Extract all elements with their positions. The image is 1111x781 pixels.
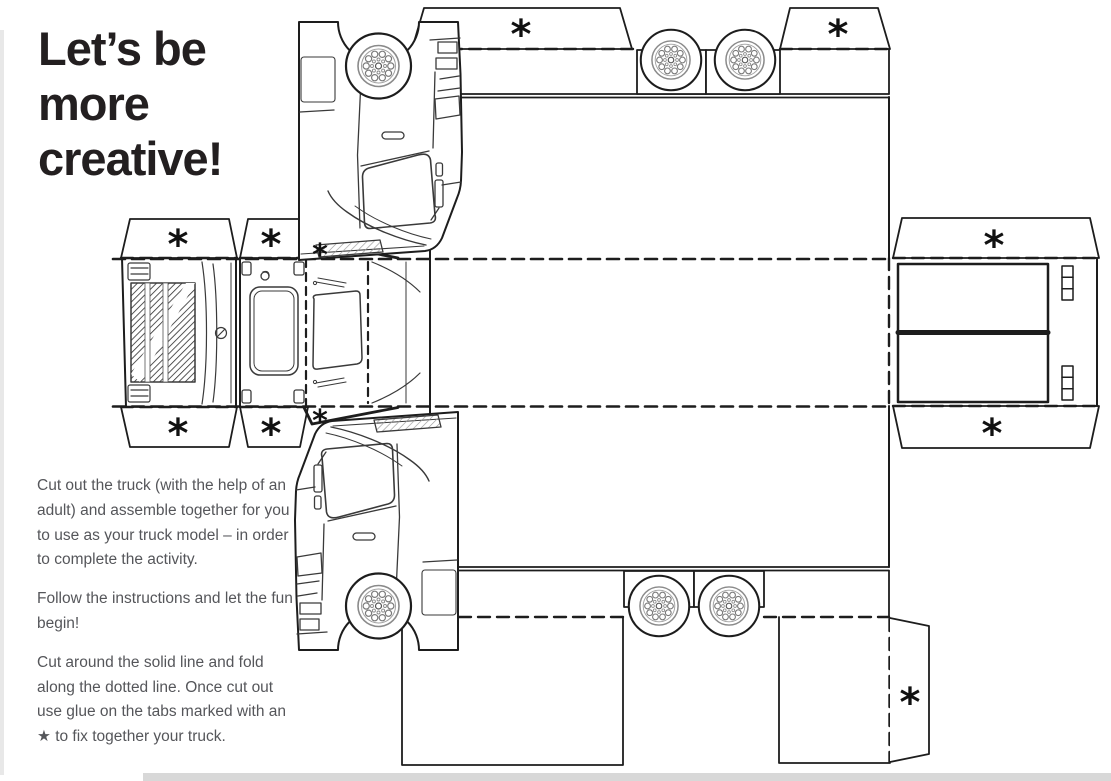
glue-tab-marker: * (828, 12, 849, 58)
grille-artwork (128, 262, 231, 404)
glue-tab-marker: * (168, 411, 189, 457)
glue-tab-marker: * (168, 222, 189, 268)
door-hinges (1062, 266, 1073, 400)
cut-line-double-bottom (430, 567, 889, 571)
glue-tab-marker: * (511, 12, 532, 58)
glue-tab-marker: * (261, 411, 282, 457)
glue-tab-marker: * (982, 411, 1003, 457)
glue-tab-marker: * (984, 223, 1005, 269)
truck-template-svg: * * * * * * * * * * * (0, 0, 1111, 781)
glue-tab-marker: * (312, 404, 328, 439)
glue-tab-marker: * (312, 238, 328, 273)
cab-side-bottom (295, 412, 458, 650)
windshield-artwork (313, 262, 420, 403)
cab-side-top (299, 22, 462, 260)
glue-tab-marker: * (261, 222, 282, 268)
trailer-panel (113, 94, 890, 571)
glue-tab-marker: * (900, 680, 921, 726)
bottom-flap-right (779, 617, 890, 763)
roof-artwork (242, 262, 304, 403)
activity-page: Let’s be more creative! Cut out the truc… (0, 0, 1111, 781)
